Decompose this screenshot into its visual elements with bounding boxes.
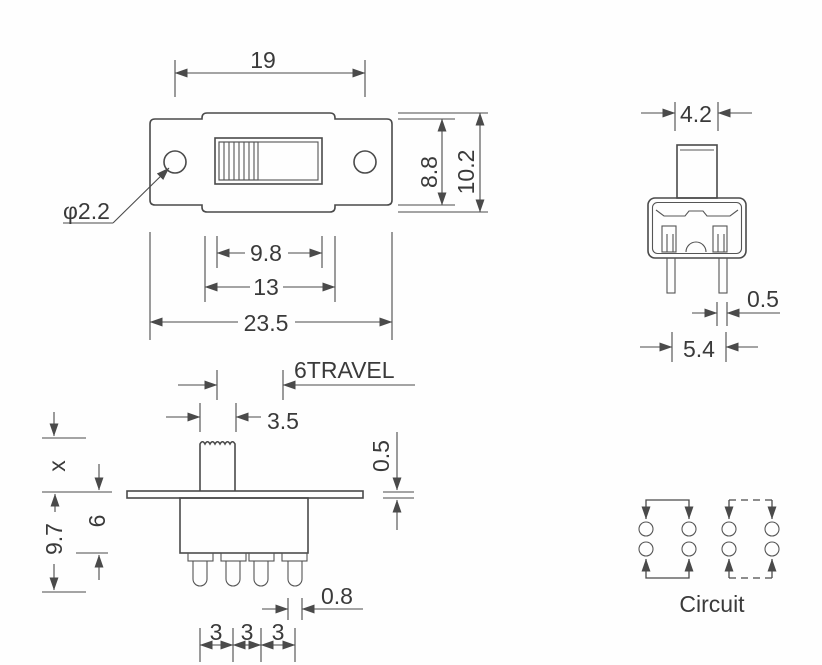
circuit-diagram: Circuit [639, 500, 779, 617]
dim-label-0-5-front: 0.5 [368, 440, 394, 472]
dim-label-23-5: 23.5 [244, 310, 289, 336]
circuit-terminal [639, 522, 653, 536]
front-view-knob [200, 442, 235, 491]
dim-pin-pitch-side: 5.4 [640, 332, 758, 362]
side-view-body-inner [653, 203, 742, 254]
circuit-bottom-link [646, 559, 689, 578]
dim-label-9-8: 9.8 [250, 240, 282, 266]
dim-inner-height: 8.8 [398, 119, 455, 205]
circuit-state-2 [722, 500, 779, 578]
side-view-left-pin [667, 258, 675, 293]
circuit-label: Circuit [679, 591, 745, 617]
front-view-stub [188, 553, 213, 561]
front-view-stub [221, 553, 246, 561]
dim-label-x: x [44, 460, 70, 472]
circuit-terminal [682, 542, 696, 556]
top-view-slot [215, 138, 322, 184]
circuit-terminal [765, 522, 779, 536]
dim-label-3-third: 3 [272, 619, 285, 645]
side-view-right-post [713, 226, 727, 252]
dim-left-column: x 9.7 6 [41, 412, 112, 592]
side-view-body [648, 198, 746, 258]
circuit-terminal [639, 542, 653, 556]
circuit-terminal [765, 542, 779, 556]
side-view-center-bump [686, 242, 706, 252]
dim-label-13: 13 [253, 274, 279, 300]
circuit-terminal [722, 542, 736, 556]
dim-knob-width-side: 4.2 [641, 101, 752, 131]
dim-knob-width-front: 3.5 [166, 403, 299, 434]
dim-label-phi-2-2: φ2.2 [63, 198, 110, 224]
technical-drawing: 19 8.8 10.2 φ2.2 9.8 [0, 0, 822, 665]
dim-label-9-7: 9.7 [41, 523, 67, 555]
front-view-stub [249, 553, 274, 561]
dim-label-8-8: 8.8 [416, 156, 442, 188]
front-view-body [180, 498, 308, 553]
dim-label-0-8: 0.8 [321, 583, 353, 609]
drawing-svg: 19 8.8 10.2 φ2.2 9.8 [0, 0, 822, 665]
front-view-pin [193, 561, 207, 586]
top-view-knob-hatch [224, 142, 254, 180]
dim-label-0-5-side: 0.5 [747, 286, 779, 312]
circuit-terminal [682, 522, 696, 536]
dim-pin-pitch-front: 3 3 3 [200, 619, 295, 662]
dim-hole-to-hole: 19 [175, 47, 365, 97]
dim-label-travel: 6TRAVEL [294, 357, 395, 383]
top-view-right-hole [354, 151, 376, 173]
dim-label-10-2: 10.2 [453, 150, 479, 195]
dim-label-3-first: 3 [210, 619, 223, 645]
dim-pin-thickness: 0.5 [692, 286, 780, 326]
dim-outer-height: 10.2 [398, 113, 488, 212]
side-view-knob [677, 145, 717, 198]
top-view: 19 8.8 10.2 φ2.2 9.8 [63, 47, 488, 340]
circuit-state-1 [639, 500, 696, 578]
dim-travel: 6TRAVEL [178, 357, 415, 400]
dim-label-3-5: 3.5 [267, 408, 299, 434]
front-view-stub [282, 553, 307, 561]
dim-label-6: 6 [84, 515, 110, 528]
front-view-pin [226, 561, 240, 586]
leader-line [113, 168, 169, 223]
front-view: 6TRAVEL 3.5 x 9.7 6 0.5 [41, 357, 415, 662]
circuit-terminal [722, 522, 736, 536]
dim-slot-width: 9.8 [217, 236, 322, 268]
dim-label-19: 19 [250, 47, 276, 73]
dim-hole-diameter: φ2.2 [63, 168, 169, 224]
dim-pin-width: 0.8 [262, 583, 363, 620]
dim-flange-thickness: 0.5 [368, 432, 414, 530]
side-view: 4.2 0.5 5.4 [640, 101, 780, 362]
front-view-pin [254, 561, 268, 586]
dim-label-4-2: 4.2 [680, 101, 712, 127]
dim-label-3-second: 3 [241, 619, 254, 645]
dim-label-5-4: 5.4 [683, 336, 715, 362]
front-view-pin [288, 561, 302, 586]
side-view-left-post [662, 226, 676, 252]
circuit-top-link [646, 500, 689, 519]
side-view-cavity-top [656, 210, 738, 216]
side-view-right-pin [719, 258, 727, 293]
front-view-flange [127, 491, 363, 498]
